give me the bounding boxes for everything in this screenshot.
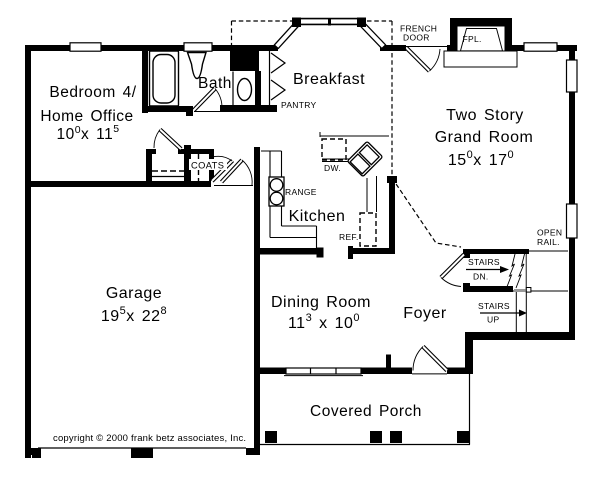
svg-text:Two Story: Two Story — [446, 107, 524, 124]
svg-text:FPL.: FPL. — [463, 34, 482, 44]
svg-text:RANGE: RANGE — [285, 187, 317, 197]
svg-text:STAIRS: STAIRS — [468, 257, 500, 267]
svg-text:Kitchen: Kitchen — [289, 208, 346, 225]
svg-text:DW.: DW. — [324, 163, 341, 173]
svg-text:STAIRS: STAIRS — [478, 301, 510, 311]
svg-text:Foyer: Foyer — [403, 305, 447, 322]
svg-text:PANTRY: PANTRY — [281, 100, 317, 110]
svg-text:REF.: REF. — [339, 232, 359, 242]
svg-text:copyright © 2000 frank betz as: copyright © 2000 frank betz associates, … — [53, 433, 246, 444]
svg-text:Covered Porch: Covered Porch — [310, 403, 422, 420]
svg-text:OPEN: OPEN — [537, 228, 562, 238]
svg-text:Garage: Garage — [106, 285, 162, 302]
svg-text:Bath: Bath — [198, 75, 232, 92]
svg-text:113 x 100: 113 x 100 — [288, 312, 360, 332]
svg-text:Home Office: Home Office — [40, 108, 133, 125]
svg-text:Bedroom 4/: Bedroom 4/ — [49, 84, 136, 101]
svg-text:100x 115: 100x 115 — [56, 123, 119, 143]
svg-text:DN.: DN. — [473, 272, 489, 282]
svg-text:RAIL.: RAIL. — [537, 237, 560, 247]
svg-text:150x 170: 150x 170 — [448, 149, 514, 169]
svg-text:DOOR: DOOR — [403, 33, 430, 43]
svg-text:195x 228: 195x 228 — [101, 305, 167, 325]
svg-text:Dining Room: Dining Room — [271, 294, 371, 311]
svg-text:UP: UP — [487, 315, 499, 325]
svg-text:COATS: COATS — [191, 161, 224, 171]
svg-text:Grand Room: Grand Room — [435, 129, 534, 146]
svg-text:Breakfast: Breakfast — [293, 71, 365, 88]
